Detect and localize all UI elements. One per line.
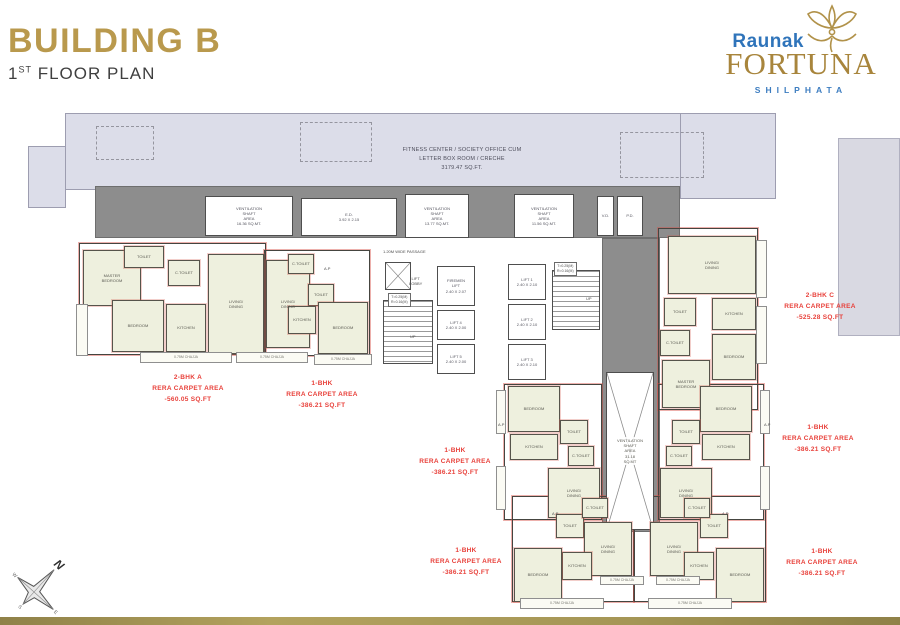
staircase-west: [383, 300, 433, 364]
slab-left-flange: [28, 146, 66, 208]
room-bedroom-bote: BEDROOM: [716, 548, 764, 602]
stair-note-west: T=0.25(M) R=0.16(M): [388, 293, 411, 307]
ap-label: A.P: [552, 511, 558, 516]
room-bedroom-a: BEDROOM: [112, 300, 164, 352]
chajja-strip: 0.75M CHAJJA: [236, 352, 308, 363]
room-bedroom-c: BEDROOM: [712, 334, 756, 380]
room-toilet-c: TOILET: [664, 298, 696, 326]
central-vent-shaft: VENTILATION SHAFT AREA 31.18 SQ.MT: [606, 372, 654, 530]
stair-note-east: T=0.25(M) R=0.16(M): [554, 262, 577, 276]
room-ctoilet-mide: C.TOILET: [666, 446, 692, 466]
room-toilet-botw: TOILET: [556, 514, 584, 538]
room-ctoilet-botw: C.TOILET: [582, 498, 608, 518]
room-ctoilet-a: C.TOILET: [168, 260, 200, 286]
chajja-strip: 0.75M CHAJJA: [656, 576, 700, 585]
dashed-marking: [620, 132, 704, 178]
unit-label-2bhk-a: 2-BHK A RERA CARPET AREA -560.05 SQ.FT: [152, 372, 224, 405]
chajja-strip: [76, 304, 88, 356]
chajja-strip: [760, 466, 770, 510]
ap-label: A.P: [498, 422, 504, 427]
unit-label-2bhk-c: 2-BHK C RERA CARPET AREA -525.28 SQ.FT: [784, 290, 856, 323]
room-bedroom-mide: BEDROOM: [700, 386, 752, 432]
chajja-strip: 0.75M CHAJJA: [314, 354, 372, 365]
room-ctoilet-bote: C.TOILET: [684, 498, 710, 518]
unit-label-1bhk-center: 1-BHK RERA CARPET AREA -386.21 SQ.FT: [419, 445, 491, 478]
compass-west-label: W: [11, 572, 19, 580]
unit-label-1bhk-east: 1-BHK RERA CARPET AREA -386.21 SQ.FT: [782, 422, 854, 455]
room-kitchen-a: KITCHEN: [166, 304, 206, 352]
chajja-strip: [496, 466, 506, 510]
room-bedroom-botw: BEDROOM: [514, 548, 562, 602]
vent-shaft-1: VENTILATION SHAFT AREA 16.36 SQ.MT.: [205, 196, 293, 236]
ap-label: A.P: [722, 511, 728, 516]
up-label-west: UP: [410, 334, 416, 339]
chajja-strip: [756, 306, 767, 364]
passage-label: 1.20M WIDE PASSAGE: [383, 249, 426, 254]
pd-room: P.D.: [617, 196, 643, 236]
unit-label-1bhk-west: 1-BHK RERA CARPET AREA -386.21 SQ.FT: [286, 378, 358, 411]
room-kitchen-botw: KITCHEN: [562, 552, 592, 580]
lift-4: LIFT 4 2.40 X 2.00: [437, 310, 475, 340]
ap-label: A.P: [324, 266, 330, 271]
chajja-strip: 0.75M CHAJJA: [520, 598, 604, 609]
chajja-strip: [756, 240, 767, 298]
duct-shaft: [385, 262, 411, 290]
vd-room: V.D.: [597, 196, 614, 236]
unit-label-1bhk-bottom-east: 1-BHK RERA CARPET AREA -386.21 SQ.FT: [786, 546, 858, 579]
vent-shaft-2: VENTILATION SHAFT AREA 13.77 SQ.MT.: [405, 194, 469, 238]
chajja-strip: 0.75M CHAJJA: [600, 576, 644, 585]
lift-lobby-label: LIFT LOBBY: [409, 276, 422, 286]
room-living-c: LIVING/ DINING: [668, 236, 756, 294]
chajja-strip: [496, 390, 506, 434]
staircase-east: [552, 270, 600, 330]
lift-2: LIFT 2 2.40 X 2.10: [508, 304, 546, 340]
dashed-marking: [96, 126, 154, 160]
room-bedroom-midw: BEDROOM: [508, 386, 560, 432]
firemen-lift: FIREMEN LIFT 2.40 X 2.07: [437, 266, 475, 306]
room-kitchen-mide: KITCHEN: [702, 434, 750, 460]
lift-1: LIFT 1 2.40 X 2.10: [508, 264, 546, 300]
compass-south-label: S: [16, 604, 23, 611]
chajja-strip: 0.75M CHAJJA: [140, 352, 232, 363]
chajja-strip: 0.75M CHAJJA: [648, 598, 732, 609]
page: BUILDING B 1ST FLOOR PLAN Raunak FORTUNA…: [0, 0, 900, 625]
up-label-east: UP: [586, 296, 592, 301]
room-toilet-midw: TOILET: [560, 420, 588, 444]
dashed-marking: [300, 122, 372, 162]
room-kitchen-c: KITCHEN: [712, 298, 756, 330]
vent-shaft-3: VENTILATION SHAFT AREA 11.56 SQ.MT.: [514, 194, 574, 238]
room-toilet-a: TOILET: [124, 246, 164, 268]
footer-gold-bar: [0, 617, 900, 625]
ed-room: E.D. 3.92 X 2.15: [301, 198, 397, 236]
unit-label-1bhk-bottom-center: 1-BHK RERA CARPET AREA -386.21 SQ.FT: [430, 545, 502, 578]
room-kitchen-midw: KITCHEN: [510, 434, 558, 460]
room-bedroom-b1w: BEDROOM: [318, 302, 368, 354]
lift-5: LIFT 5 2.40 X 2.00: [437, 344, 475, 374]
lift-3: LIFT 3 2.40 X 2.10: [508, 344, 546, 380]
chajja-strip: [760, 390, 770, 434]
room-ctoilet-c: C.TOILET: [660, 330, 690, 356]
room-living-a: LIVING/ DINING: [208, 254, 264, 354]
room-kitchen-b1w: KITCHEN: [288, 306, 316, 334]
floor-plan: VENTILATION SHAFT AREA 16.36 SQ.MT.E.D. …: [0, 0, 900, 625]
compass-east-label: E: [52, 609, 59, 616]
room-ctoilet-b1w: C.TOILET: [288, 254, 314, 274]
compass-rose: N E S W: [0, 554, 76, 622]
room-toilet-mide: TOILET: [672, 420, 700, 444]
room-ctoilet-midw: C.TOILET: [568, 446, 594, 466]
fitness-area-label: FITNESS CENTER / SOCIETY OFFICE CUM LETT…: [403, 146, 522, 172]
ap-label: A.P: [764, 422, 770, 427]
